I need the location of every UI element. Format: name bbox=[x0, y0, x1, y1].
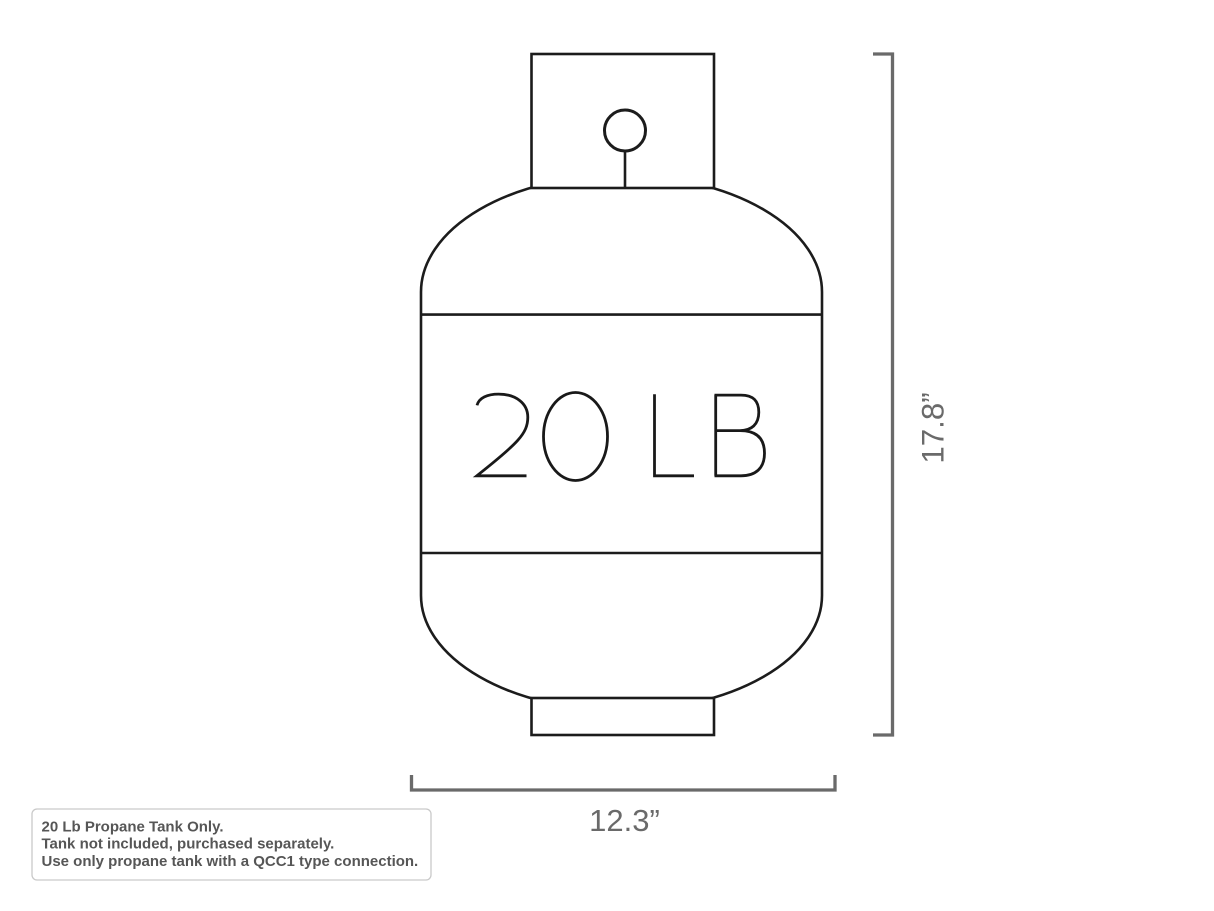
svg-text:12.3”: 12.3” bbox=[589, 803, 660, 838]
svg-text:17.8”: 17.8” bbox=[916, 392, 951, 463]
svg-text:Use only propane tank with a Q: Use only propane tank with a QCC1 type c… bbox=[42, 853, 419, 870]
svg-text:20 Lb Propane Tank Only.: 20 Lb Propane Tank Only. bbox=[42, 818, 224, 835]
svg-text:Tank not included, purchased s: Tank not included, purchased separately. bbox=[42, 836, 335, 853]
